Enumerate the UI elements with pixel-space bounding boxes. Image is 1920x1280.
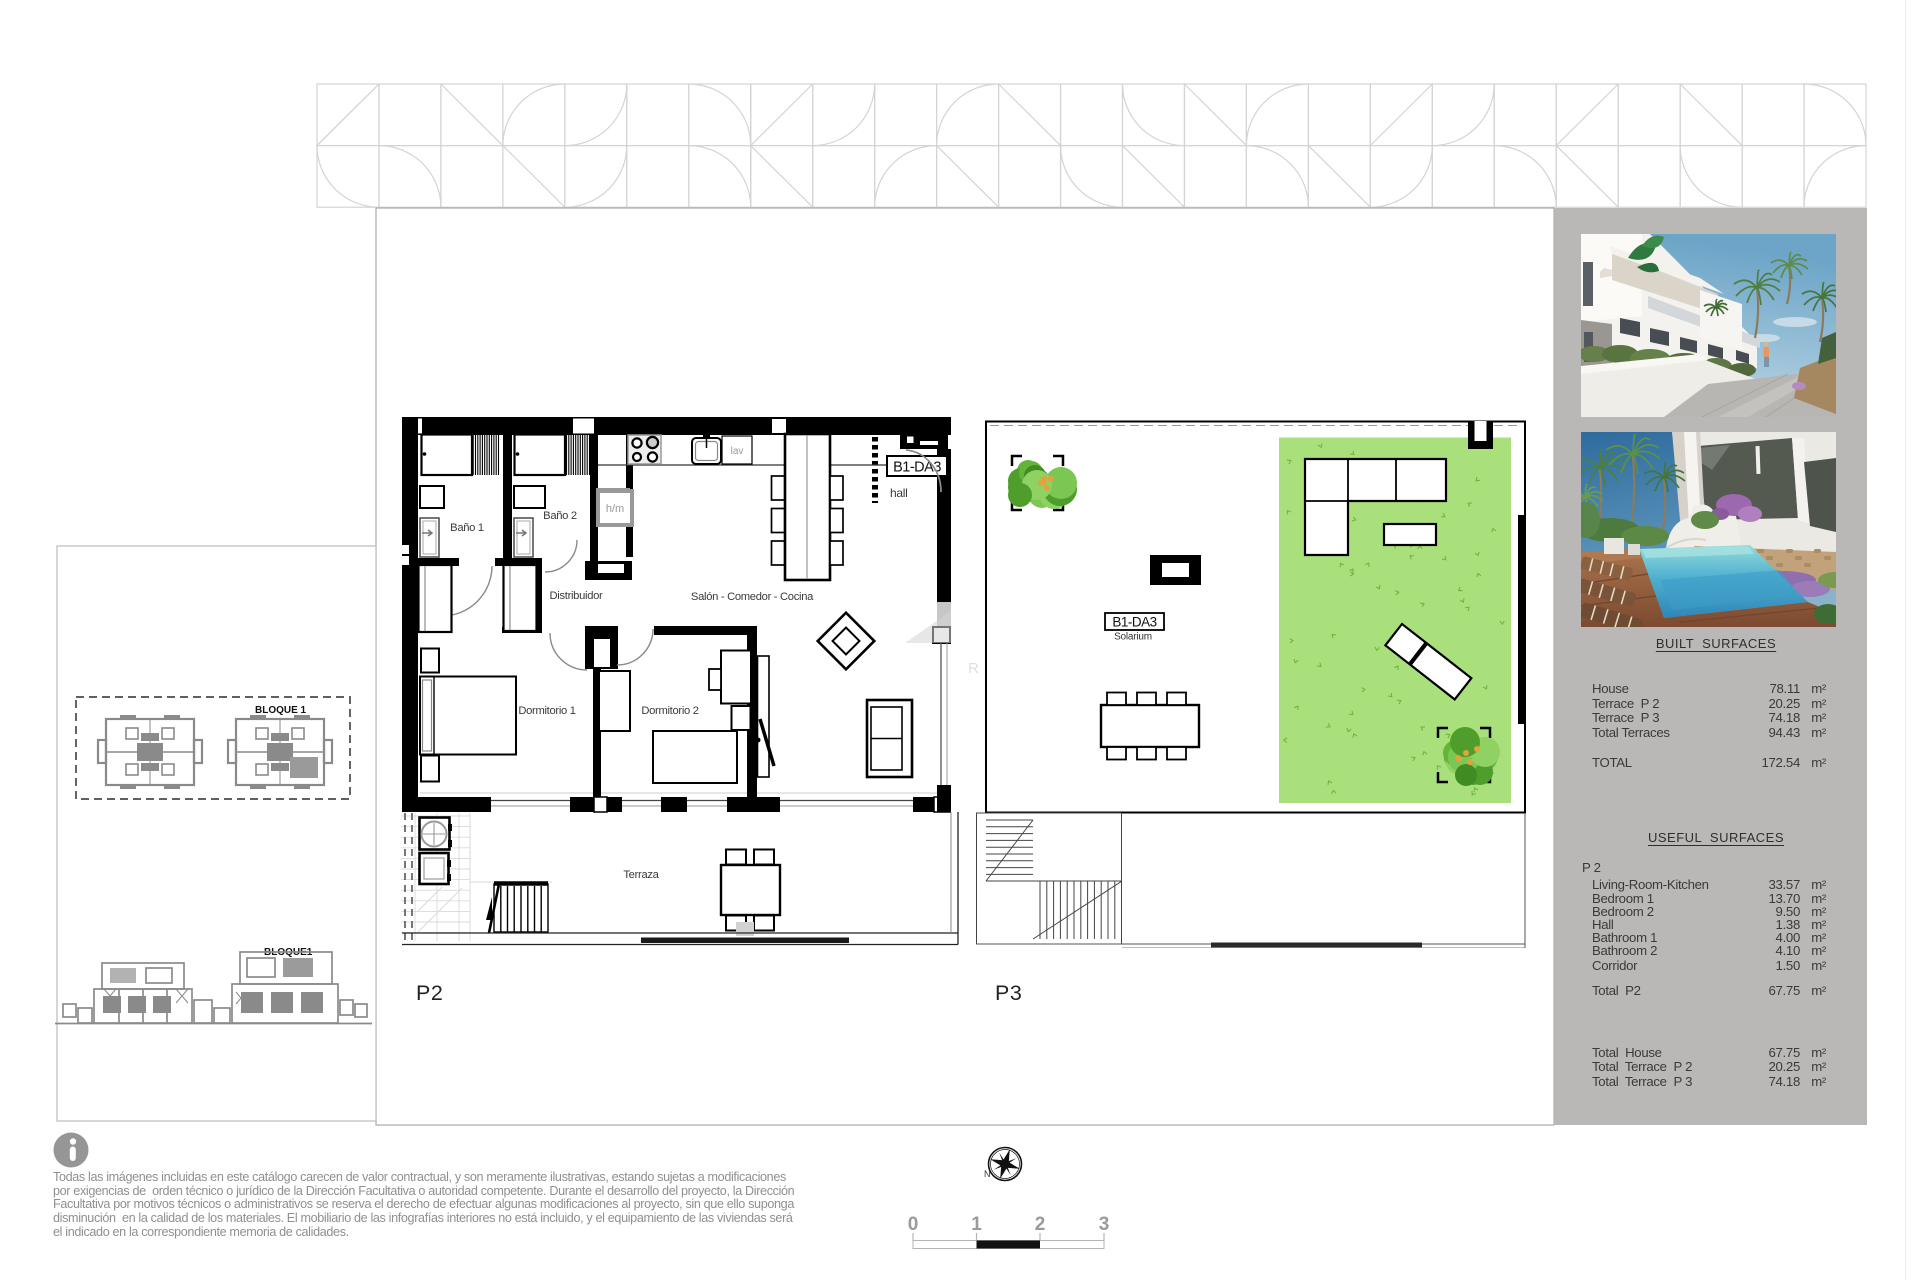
svg-text:1: 1 [971,1214,982,1235]
svg-text:lav: lav [731,446,744,457]
svg-text:P3: P3 [995,981,1022,1005]
svg-text:Dormitorio 2: Dormitorio 2 [641,705,698,717]
svg-text:Terraza: Terraza [623,869,659,881]
svg-text:BLOQUE 1: BLOQUE 1 [255,705,307,716]
svg-text:R: R [968,660,979,677]
svg-text:0: 0 [908,1214,919,1235]
svg-text:h/m: h/m [606,503,624,515]
svg-text:Dormitorio 1: Dormitorio 1 [518,705,575,717]
svg-text:N: N [984,1169,991,1179]
svg-text:hall: hall [890,486,907,500]
svg-text:2: 2 [1035,1214,1046,1235]
svg-text:Baño 2: Baño 2 [543,510,577,522]
svg-text:Distribuidor: Distribuidor [550,590,604,602]
svg-text:P2: P2 [416,981,443,1005]
svg-text:Salón - Comedor - Cocina: Salón - Comedor - Cocina [691,591,814,603]
svg-text:Solarium: Solarium [1114,632,1152,643]
svg-text:B1-DA3: B1-DA3 [1112,615,1156,630]
svg-text:3: 3 [1099,1214,1110,1235]
svg-text:Baño 1: Baño 1 [450,522,484,534]
